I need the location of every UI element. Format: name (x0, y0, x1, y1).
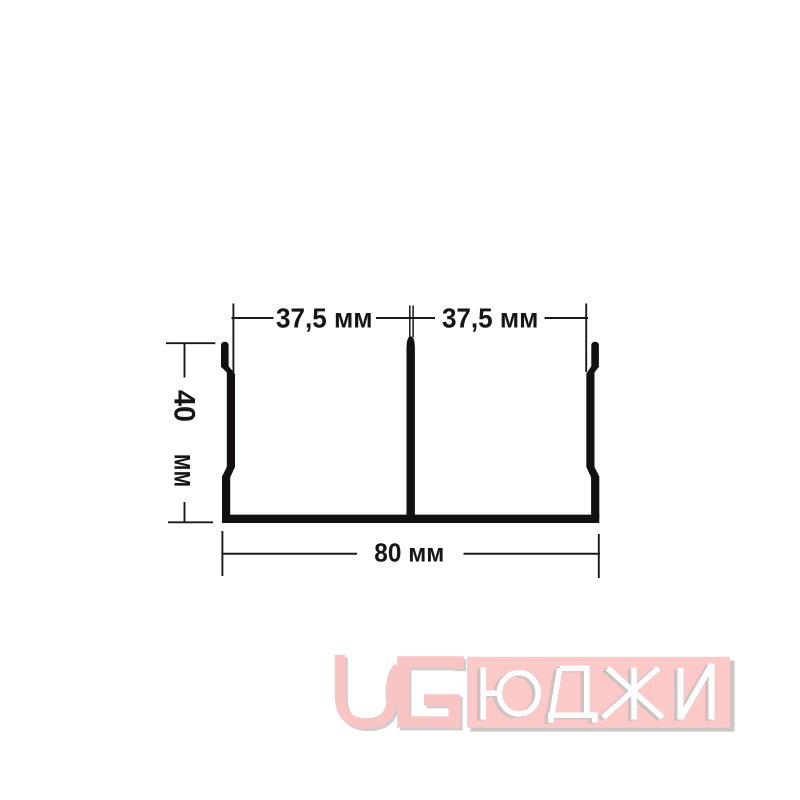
svg-text:40: 40 (168, 390, 201, 422)
svg-text:37,5 мм: 37,5 мм (276, 303, 373, 334)
svg-text:37,5 мм: 37,5 мм (442, 303, 539, 334)
svg-text:80 мм: 80 мм (374, 538, 444, 568)
svg-text:мм: мм (168, 454, 201, 488)
